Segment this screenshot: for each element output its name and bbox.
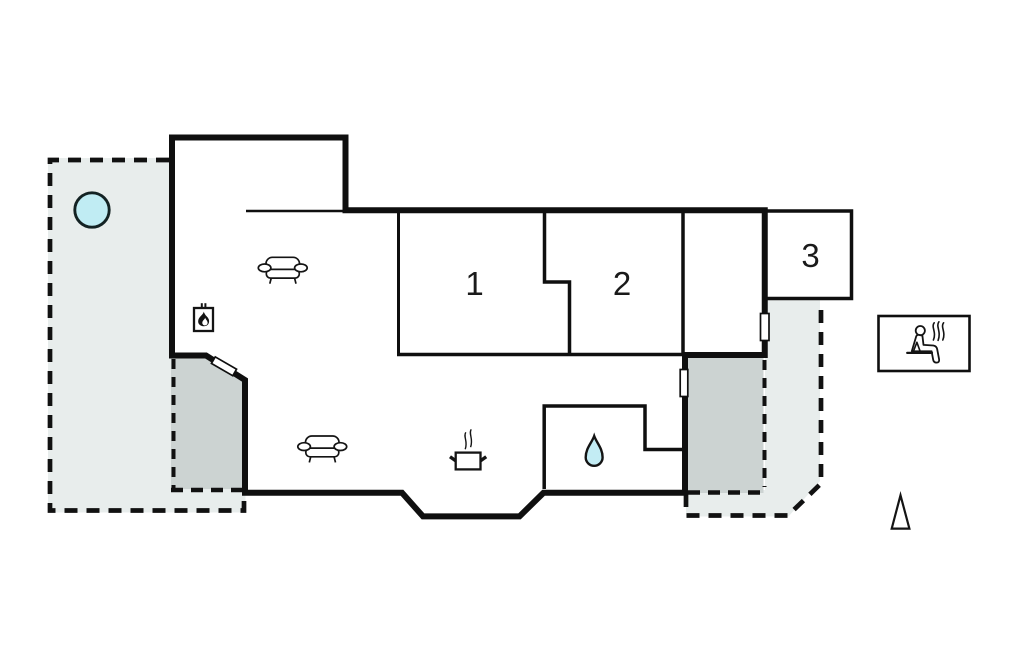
svg-text:2: 2 xyxy=(613,265,631,302)
svg-text:3: 3 xyxy=(801,237,819,274)
svg-text:1: 1 xyxy=(465,265,483,302)
